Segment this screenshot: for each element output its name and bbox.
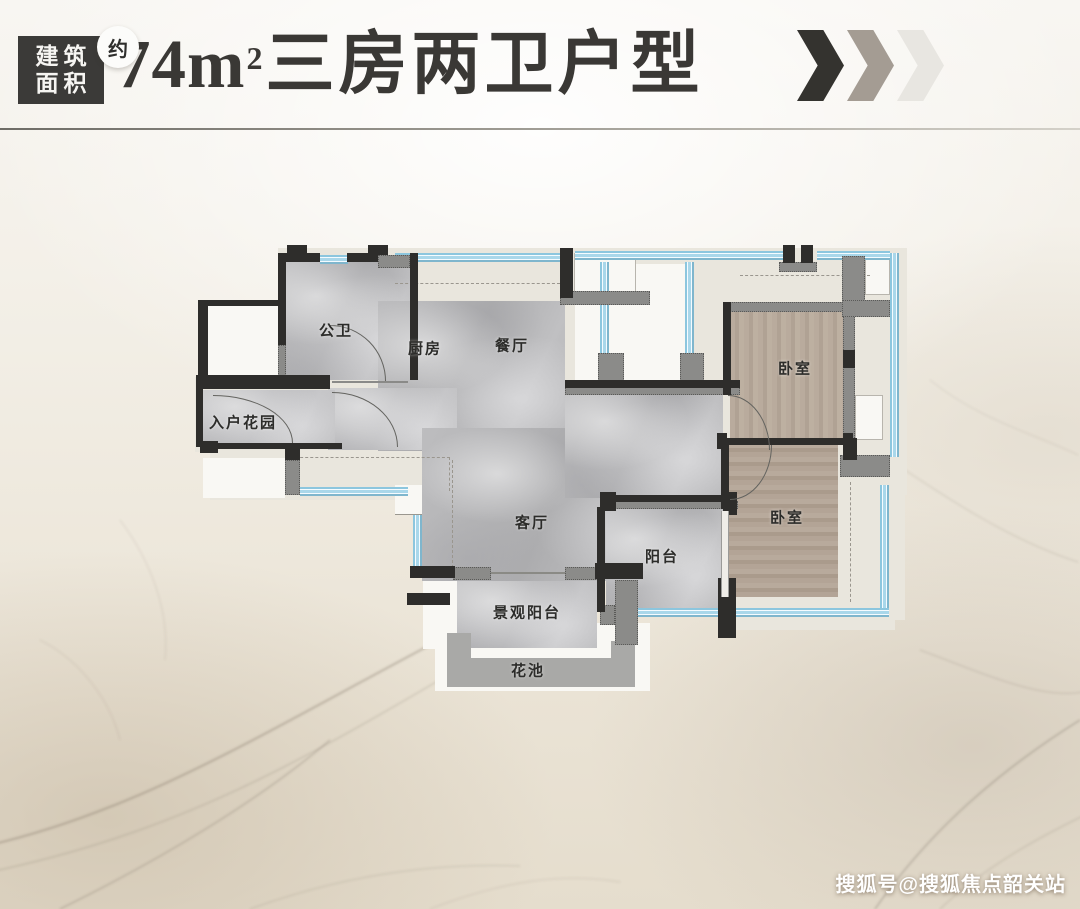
room-label-balcony: 阳台: [645, 546, 679, 567]
wall-dark: [410, 253, 418, 380]
title-superscript: 2: [246, 40, 262, 76]
sliding-door: [721, 511, 729, 597]
approx-tag-text: 约: [108, 33, 128, 62]
wall-dark: [196, 385, 203, 447]
window-band: [600, 262, 609, 357]
wall-gray: [615, 580, 638, 645]
window-box: [855, 395, 883, 440]
dashed-line: [452, 460, 453, 578]
window-band: [685, 262, 694, 357]
window-band: [880, 485, 889, 615]
area-badge-line1: 建筑: [36, 43, 92, 70]
wall-gray: [842, 300, 890, 317]
wall-gray: [843, 302, 855, 438]
wall-dark: [287, 245, 307, 255]
wall-dark: [198, 300, 283, 306]
wall-gray: [378, 255, 410, 268]
chevron-icon: [797, 30, 844, 101]
wall-gray: [285, 460, 300, 495]
room-label-entry-garden: 入户花园: [209, 412, 277, 433]
room-label-kitchen: 厨房: [408, 338, 442, 359]
wall-gray: [728, 302, 843, 312]
window-band: [413, 515, 422, 571]
wall-gray: [560, 291, 650, 305]
wall-dark: [198, 300, 208, 380]
wall-dark: [565, 380, 740, 388]
window-band: [395, 253, 562, 262]
ac-platform: [203, 303, 283, 377]
wall-dark: [843, 438, 857, 460]
wall-dark: [560, 248, 573, 298]
wall-dark: [407, 593, 450, 605]
chevron-icon: [897, 30, 944, 101]
window-band: [320, 255, 348, 264]
dashed-line: [850, 482, 851, 602]
area-badge: 建筑 面积: [18, 36, 104, 104]
title-layout-text: 三房两卫户型: [265, 26, 703, 102]
wall-dark: [600, 495, 732, 502]
wall-dark: [285, 445, 300, 460]
window-band: [890, 253, 899, 457]
room-label-bathroom: 公卫: [319, 320, 353, 341]
window-band: [300, 487, 408, 496]
wall-dark: [723, 302, 731, 395]
room-label-bedroom-upper: 卧室: [778, 358, 812, 379]
area-badge-line2: 面积: [36, 70, 92, 97]
window-box: [865, 258, 890, 295]
dashed-line: [290, 457, 450, 491]
wall-dark: [595, 563, 643, 579]
wall-gray: [842, 256, 865, 303]
sliding-door: [491, 572, 565, 574]
wall-dark: [196, 375, 330, 389]
wall-dark: [597, 507, 605, 612]
header-divider: [0, 128, 1080, 130]
wall-dark: [410, 566, 455, 578]
wall-gray: [600, 501, 738, 509]
chevron-icon: [847, 30, 894, 101]
flower-bed-band: [611, 641, 635, 687]
wall-gray: [779, 262, 817, 272]
room-label-living: 客厅: [515, 512, 549, 533]
approx-tag: 约: [97, 26, 139, 68]
window-band: [725, 608, 889, 617]
white-band: [203, 458, 285, 498]
door-opening: [332, 381, 408, 383]
floorplan: 公卫 厨房 餐厅 入户花园 客厅 阳台 卧室 卧室 景观阳台 花池: [195, 245, 907, 710]
sliding-door-block: [453, 567, 491, 580]
floor-passage: [565, 388, 723, 498]
wall-dark: [203, 443, 342, 449]
page-title: 74m2三房两卫户型: [116, 16, 703, 112]
room-label-bedroom-lower: 卧室: [770, 507, 804, 528]
watermark: 搜狐号@搜狐焦点韶关站: [835, 868, 1066, 897]
wall-dark: [801, 245, 813, 263]
room-label-flower-bed: 花池: [511, 660, 545, 681]
wall-dark: [368, 245, 388, 255]
room-label-scenic-balcony: 景观阳台: [493, 602, 561, 623]
wall-dark: [783, 245, 795, 263]
wall-dark: [843, 350, 855, 368]
dashed-line: [395, 283, 560, 284]
window-band: [575, 251, 783, 260]
chevron-arrows: [797, 30, 947, 101]
room-label-dining: 餐厅: [495, 335, 529, 356]
